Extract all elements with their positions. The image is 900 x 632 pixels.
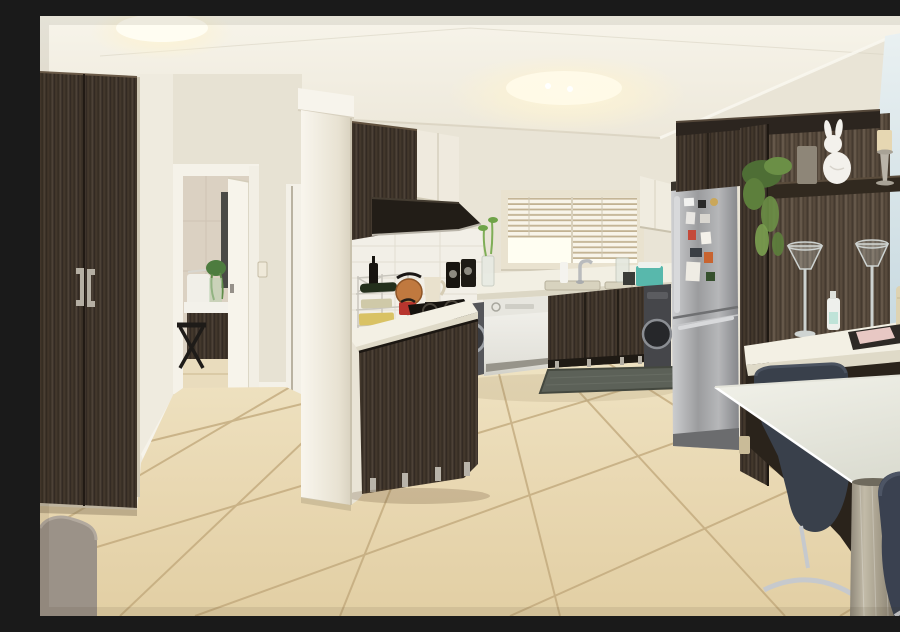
base-cabinets (548, 286, 645, 369)
blind-left (508, 197, 572, 238)
bathroom-door-handle (230, 284, 234, 293)
floor-rug (540, 367, 681, 393)
washer-right (643, 284, 671, 378)
fridge-handle (674, 196, 680, 313)
second-doorway (286, 184, 302, 394)
dishwasher (484, 296, 548, 376)
black-bottle (369, 263, 378, 286)
kitchen-photo: Open-plan kitchen interior with dark woo… (40, 16, 900, 616)
kitchen-photo-canvas: Open-plan kitchen interior with dark woo… (40, 16, 900, 616)
wall-cabinet-white (640, 176, 671, 232)
bathroom (173, 164, 259, 394)
light-switch-hall (258, 262, 267, 277)
wardrobe (40, 72, 140, 508)
blind-right (572, 197, 637, 259)
bathroom-plant (206, 260, 226, 276)
pillar (298, 88, 354, 511)
counter-items-right (616, 258, 663, 286)
fridge (671, 174, 739, 450)
dish-soap (560, 262, 568, 283)
coffee-bags (446, 259, 476, 288)
